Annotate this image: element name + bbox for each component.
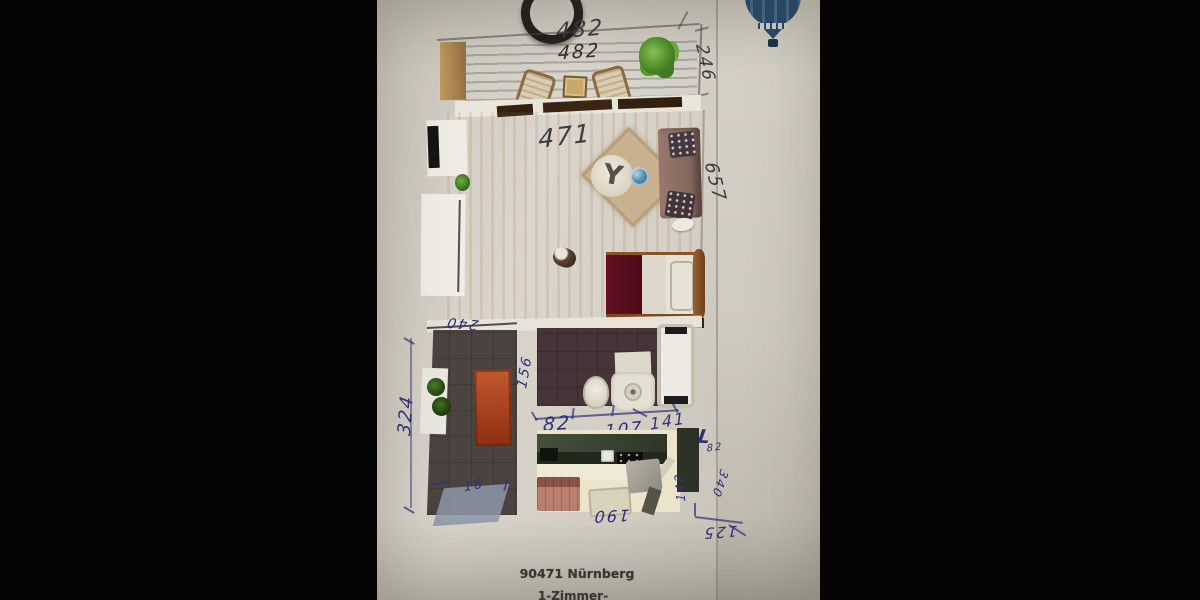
- balcony-plant: [639, 37, 675, 75]
- balloon-neck: [764, 29, 782, 39]
- dim-balcony-width-deck: 482: [557, 39, 600, 64]
- floor-plan-photo: 482 482 246 471 657 Y 240 32: [377, 0, 820, 600]
- dim-hall-length: 324: [394, 393, 418, 437]
- hall-plant-2: [432, 397, 451, 416]
- bed-pillow: [670, 261, 694, 311]
- bed-sheet: [642, 255, 666, 314]
- hall-rug: [474, 370, 511, 447]
- balloon-basket: [768, 39, 778, 47]
- kitchen-appliance-white: [601, 450, 614, 462]
- dim-hall-width-top: 240: [444, 314, 480, 333]
- dim-bath-depth: 156: [514, 354, 535, 391]
- address-caption: 90471 Nürnberg: [517, 566, 637, 581]
- sofa-cushion-bottom: [664, 190, 695, 220]
- dim-tick-offset: [694, 503, 696, 516]
- background-surface: [718, 0, 820, 600]
- bed-blanket: [606, 255, 642, 314]
- bed: [606, 252, 704, 318]
- blue-bowl: [630, 167, 649, 186]
- sink-basin: [624, 383, 642, 401]
- dim-tick-bath-mid1: [571, 408, 574, 419]
- balcony-table: [562, 75, 587, 98]
- bathtub-fixture-bottom: [664, 396, 688, 404]
- tv: [427, 126, 439, 168]
- hot-air-balloon-logo: [745, 0, 801, 50]
- hall-plant-1: [427, 378, 445, 396]
- toilet: [583, 376, 609, 409]
- balcony-cabinet: [440, 42, 466, 100]
- dim-kitchen-width: 190: [592, 505, 630, 526]
- dim-kitchen-side: 142: [672, 472, 689, 501]
- living-plant: [455, 174, 470, 191]
- paper-edge: [716, 0, 718, 600]
- corner-value-mark: 82: [707, 441, 724, 454]
- bathtub-fixture-top: [665, 327, 687, 334]
- dim-kitchen-offset: 125: [702, 522, 738, 543]
- sofa-cushion-top: [668, 131, 696, 159]
- unit-type-caption: 1-Zimmer-Wohnung: [511, 589, 635, 600]
- dresser: [537, 477, 580, 511]
- bed-headboard: [693, 249, 705, 320]
- sketch-tick-balcony-corner: [677, 11, 688, 30]
- kitchen-module-left: [540, 448, 558, 461]
